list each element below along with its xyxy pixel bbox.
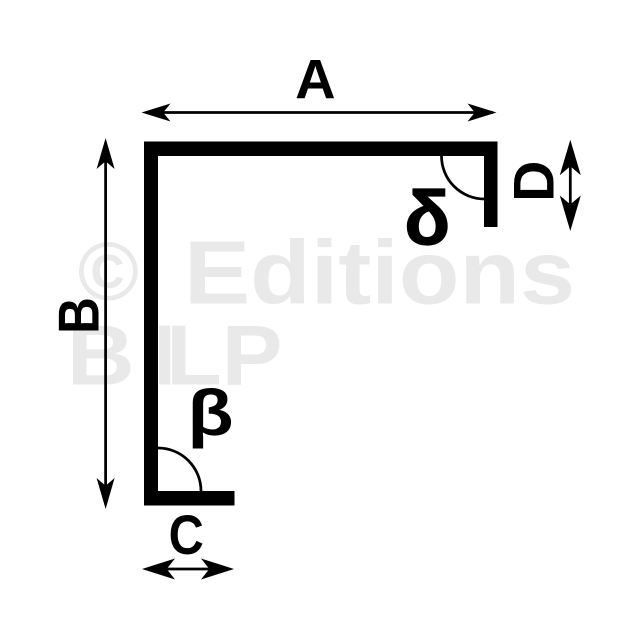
- svg-text:C: C: [169, 504, 204, 567]
- svg-text:δ: δ: [404, 176, 450, 261]
- svg-text:B: B: [47, 297, 112, 334]
- svg-text:D: D: [503, 161, 567, 202]
- svg-text:β: β: [188, 376, 234, 449]
- svg-text:A: A: [295, 48, 335, 111]
